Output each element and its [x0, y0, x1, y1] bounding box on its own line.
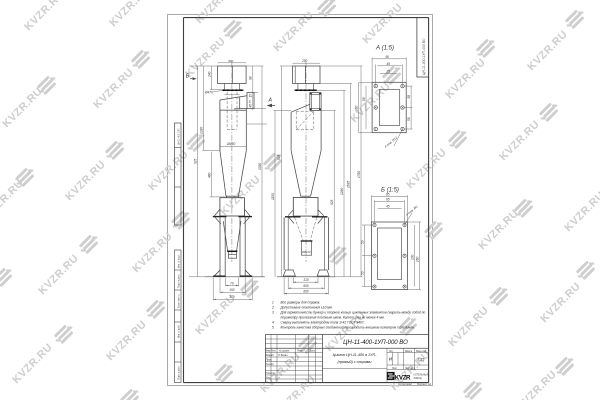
svg-text:300: 300: [228, 59, 233, 63]
svg-text:50: 50: [361, 271, 365, 275]
svg-text:2: 2: [271, 306, 274, 310]
svg-text:5: 5: [272, 326, 274, 330]
svg-text:Инв.№ подл.: Инв.№ подл.: [177, 254, 180, 268]
svg-text:Контроль качества сборных соед: Контроль качества сборных соединений про…: [281, 326, 415, 330]
svg-text:98: 98: [249, 76, 253, 80]
svg-text:ЗАВОД: ЗАВОД: [414, 377, 422, 380]
svg-text:Дата: Дата: [310, 350, 316, 353]
svg-text:1: 1: [272, 301, 274, 305]
svg-text:45: 45: [387, 62, 391, 66]
svg-text:600: 600: [303, 284, 309, 288]
svg-text:Масштаб: Масштаб: [416, 350, 427, 353]
svg-text:370: 370: [229, 295, 235, 299]
svg-text:KVZR: KVZR: [395, 374, 411, 381]
svg-text:58: 58: [407, 117, 411, 121]
svg-text:Ø450: Ø450: [226, 142, 235, 146]
svg-text:460: 460: [208, 172, 212, 178]
svg-text:Разраб.: Разраб.: [266, 354, 275, 357]
svg-text:160: 160: [416, 256, 420, 262]
svg-text:45: 45: [386, 205, 390, 209]
svg-text:250: 250: [301, 59, 308, 63]
svg-text:1330: 1330: [200, 127, 204, 134]
svg-text:ЦН-11-400-1УП-000 ВО: ЦН-11-400-1УП-000 ВО: [422, 38, 426, 75]
svg-text:Формат А4: Формат А4: [417, 382, 432, 386]
svg-text:Циклон ЦН-11-400 в 1УП-: Циклон ЦН-11-400 в 1УП-: [333, 353, 377, 357]
svg-text:525: 525: [277, 154, 281, 160]
svg-text:58: 58: [407, 95, 411, 99]
svg-text:240: 240: [208, 71, 212, 78]
svg-text:1030: 1030: [258, 163, 262, 170]
svg-text:75: 75: [248, 100, 252, 104]
svg-text:660: 660: [303, 290, 309, 294]
svg-text:А (1:5): А (1:5): [375, 46, 394, 52]
svg-text:Подп.: Подп.: [297, 350, 304, 353]
svg-text:№ докум.: № докум.: [279, 350, 290, 353]
svg-text:Взам. инв.№: Взам. инв.№: [177, 294, 180, 308]
svg-text:Подп. и дата: Подп. и дата: [178, 274, 180, 288]
svg-text:45: 45: [249, 104, 253, 108]
svg-text:925: 925: [193, 158, 197, 164]
svg-text:Изм.Лист: Изм.Лист: [266, 350, 277, 353]
svg-text:100: 100: [411, 254, 415, 260]
svg-text:Ø470: Ø470: [204, 90, 213, 94]
svg-text:15: 15: [249, 94, 253, 98]
svg-text:160: 160: [354, 105, 358, 111]
svg-text:925: 925: [330, 199, 334, 205]
svg-text:Пров.: Пров.: [266, 359, 273, 362]
svg-text:Т.контр.: Т.контр.: [266, 363, 275, 366]
svg-text:Н.контр.: Н.контр.: [266, 372, 276, 375]
svg-text:1:15: 1:15: [417, 358, 425, 362]
svg-text:58: 58: [362, 97, 366, 101]
svg-text:Допустимые отклонения ±10 мм.: Допустимые отклонения ±10 мм.: [280, 306, 333, 310]
svg-text:Сварку выполнять электродом ти: Сварку выполнять электродом типа Э-42 ГО…: [281, 321, 365, 325]
svg-text:Подп. и дата: Подп. и дата: [178, 366, 180, 380]
svg-text:ЦН-11-400-1УП-000 ВО: ЦН-11-400-1УП-000 ВО: [343, 340, 408, 346]
svg-text:А: А: [268, 98, 273, 104]
svg-text:Утв.: Утв.: [266, 377, 271, 380]
svg-text:70: 70: [230, 281, 234, 285]
svg-text:1780: 1780: [357, 171, 361, 178]
svg-text:Инв.№ дубл.: Инв.№ дубл.: [177, 324, 180, 338]
svg-text:1150: 1150: [271, 193, 275, 200]
svg-text:1635: 1635: [346, 181, 350, 188]
svg-text:Лит.: Лит.: [389, 350, 394, 353]
svg-text:Лист: Лист: [392, 367, 398, 370]
svg-text:90: 90: [386, 55, 390, 59]
svg-text:Масса: Масса: [405, 350, 413, 353]
svg-text:ЦН-11-400-1УП: ЦН-11-400-1УП: [178, 128, 180, 145]
svg-text:85: 85: [386, 193, 390, 197]
svg-text:4: 4: [272, 321, 274, 325]
svg-text:Ø6х10: Ø6х10: [301, 250, 311, 254]
svg-text:Копировал: Копировал: [398, 382, 412, 386]
svg-text:Для герметичности бункер и опо: Для герметичности бункер и опорное кольц…: [280, 311, 426, 315]
svg-text:50: 50: [361, 240, 365, 244]
svg-text:периметру прилегания плотным ш: периметру прилегания плотным швом. Катет…: [281, 316, 385, 320]
svg-text:1280: 1280: [340, 188, 344, 195]
svg-text:Б: Б: [186, 74, 190, 80]
svg-text:Б (1:5): Б (1:5): [381, 188, 399, 194]
svg-text:25: 25: [386, 69, 391, 73]
svg-text:(правый) с опорами: (правый) с опорами: [338, 360, 372, 364]
svg-text:Листов 1: Листов 1: [405, 367, 415, 370]
svg-text:Все размеры для справок.: Все размеры для справок.: [281, 301, 321, 305]
svg-text:150: 150: [229, 288, 235, 292]
svg-text:65: 65: [386, 198, 390, 202]
svg-text:3: 3: [272, 311, 274, 315]
svg-text:310: 310: [303, 278, 309, 282]
svg-text:Н.Бохан: Н.Бохан: [279, 354, 289, 357]
